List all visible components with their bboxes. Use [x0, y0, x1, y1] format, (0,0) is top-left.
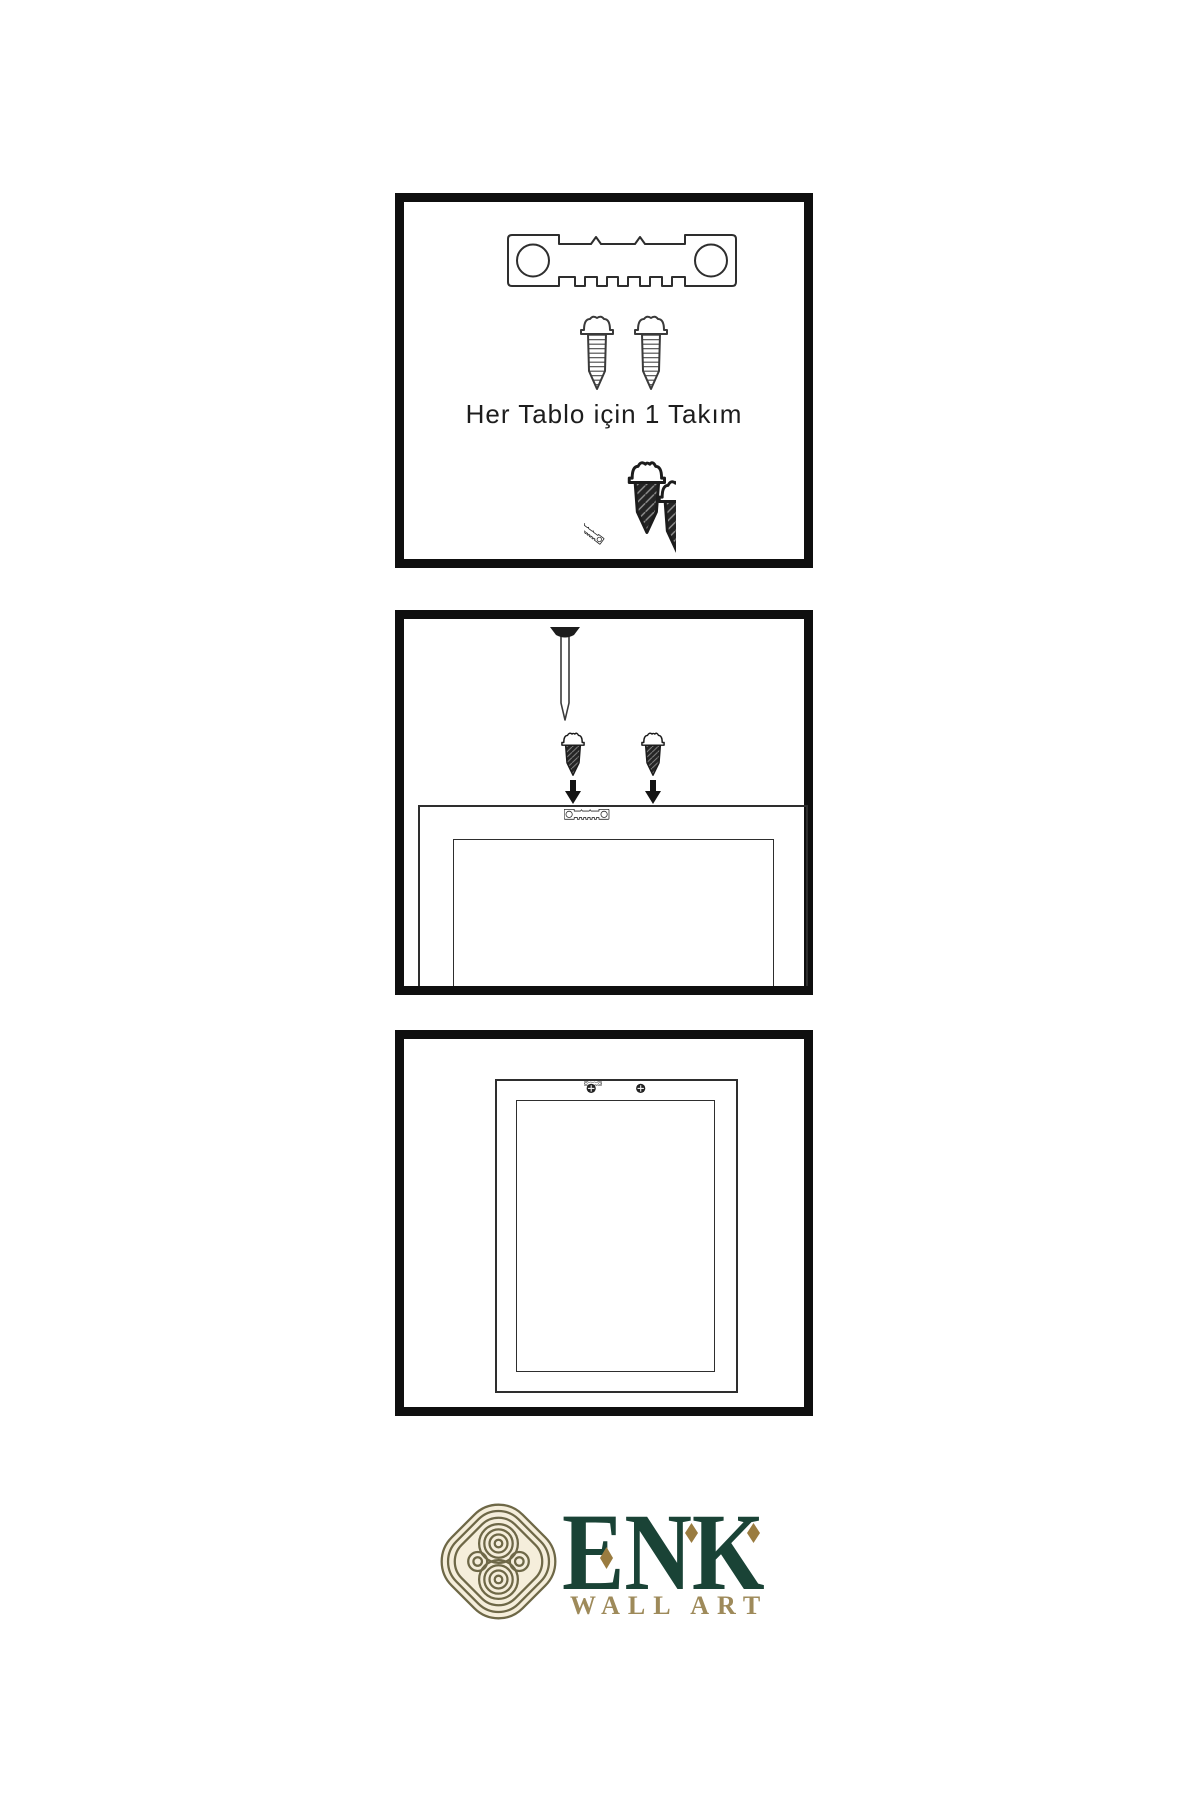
- instruction-sheet: Her Tablo için 1 Takım: [0, 0, 1200, 1800]
- screw-icon: [641, 731, 665, 777]
- screw-icon: [579, 315, 615, 393]
- frame-inner-edge: [453, 839, 774, 986]
- wall-nail-icon: [550, 627, 580, 725]
- brand-logo: [437, 1498, 560, 1625]
- screw-icon: [561, 731, 585, 777]
- mounted-sawtooth-hanger-icon: [584, 1081, 648, 1099]
- interlaced-knot-icon: [437, 1498, 560, 1625]
- step2-panel: [395, 610, 813, 995]
- step3-panel: [395, 1030, 813, 1416]
- brand-subtitle: WALL ART: [570, 1593, 768, 1619]
- frame-inner-edge: [516, 1100, 715, 1372]
- sawtooth-hanger-icon: [507, 234, 737, 287]
- sawtooth-hanger-icon: [564, 809, 666, 833]
- step1-panel: Her Tablo için 1 Takım: [395, 193, 813, 568]
- down-arrow-icon: [564, 780, 582, 804]
- down-arrow-icon: [644, 780, 662, 804]
- step1-caption: Her Tablo için 1 Takım: [404, 399, 804, 430]
- screw-and-hanger-demo-icon: [584, 459, 676, 557]
- screw-icon: [633, 315, 669, 393]
